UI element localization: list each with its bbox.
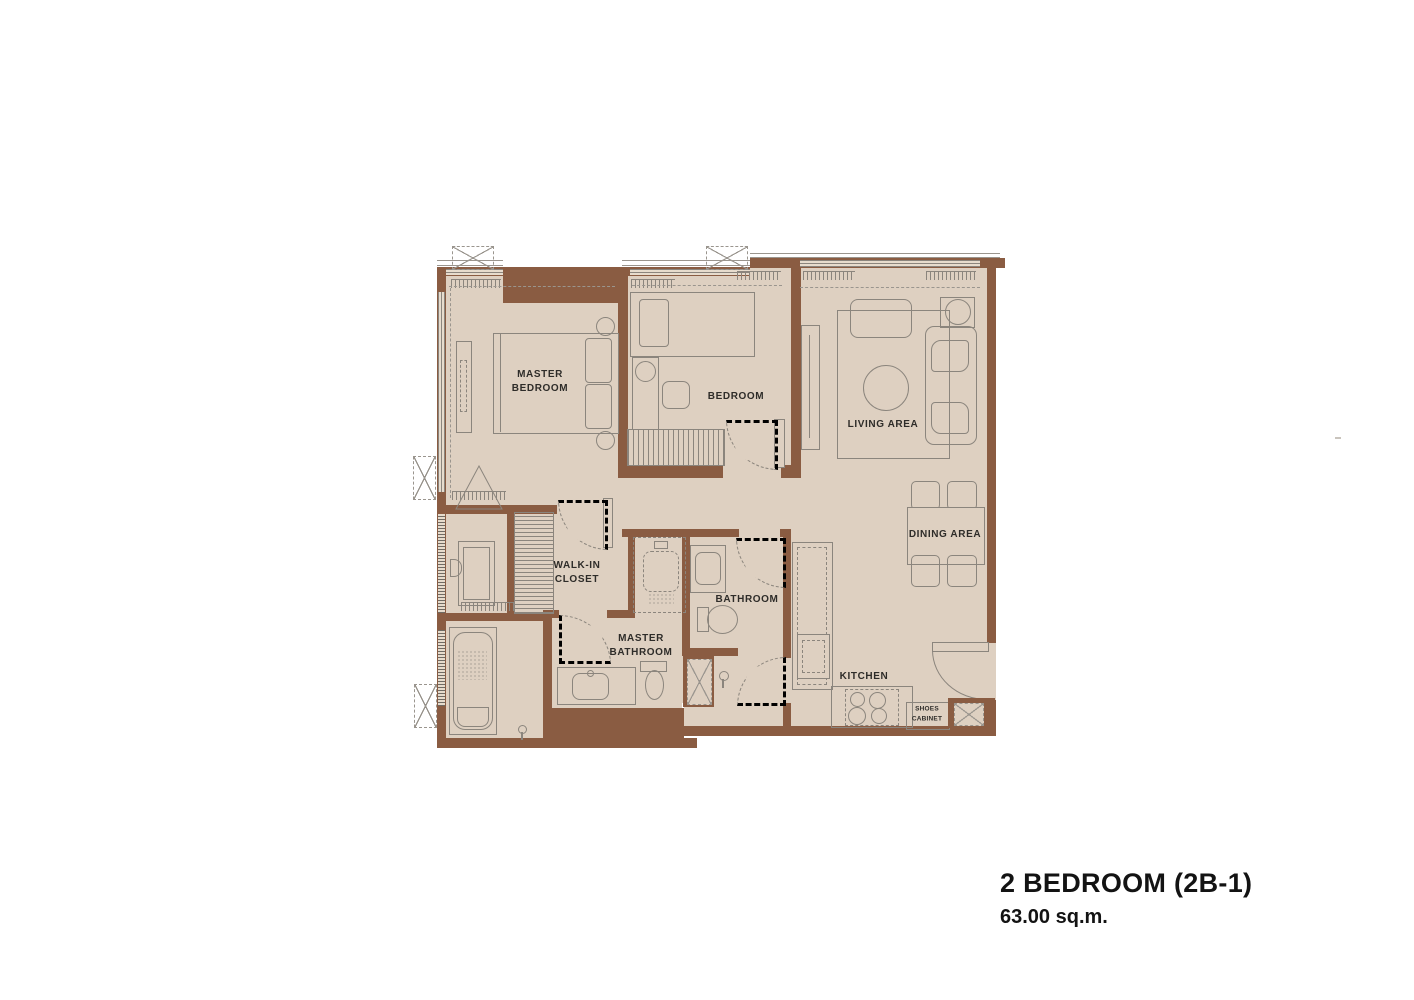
stove-burner-icon <box>848 707 866 725</box>
wall <box>607 610 635 618</box>
ac-ledge-marker <box>413 456 436 500</box>
sofa-pillow <box>931 402 969 434</box>
floor-drain-stem <box>722 679 724 688</box>
floor-drain-icon <box>719 671 729 681</box>
fridge-detail <box>802 640 825 673</box>
shower-tray <box>643 551 679 592</box>
wall <box>791 268 801 478</box>
vanity-basin <box>572 673 609 700</box>
window <box>438 514 445 613</box>
dresser-detail <box>460 360 467 412</box>
service-shaft <box>687 659 712 705</box>
wardrobe <box>514 512 554 614</box>
window-sill <box>750 253 1000 258</box>
curtain-icon <box>803 271 855 280</box>
floor-plan-page: MASTER BEDROOM BEDROOM LIVING AREA DININ… <box>0 0 1414 1000</box>
curtain-track <box>450 288 451 498</box>
stray-mark <box>1335 437 1341 439</box>
pillow <box>639 299 669 347</box>
label-shoes-cabinet: SHOES CABINET <box>912 704 942 724</box>
curtain-track <box>632 285 782 286</box>
pillow <box>585 384 612 429</box>
plan-title: 2 BEDROOM (2B-1) <box>1000 868 1252 899</box>
wall <box>690 529 739 537</box>
window <box>438 292 445 492</box>
toilet-bowl <box>707 605 738 634</box>
shower-head-icon <box>654 541 668 549</box>
plan-area: 63.00 sq.m. <box>1000 906 1252 929</box>
service-shaft <box>954 703 984 726</box>
room-label-kitchen: KITCHEN <box>840 670 889 684</box>
curtain-icon <box>737 271 781 280</box>
curtain-track <box>449 286 615 287</box>
stove-burner-icon <box>850 692 865 707</box>
desk-lamp-icon <box>635 361 656 382</box>
dining-chair <box>911 481 940 510</box>
floor-drain-stem <box>521 732 523 740</box>
chair <box>662 381 690 409</box>
shower-drain-dots <box>648 593 674 606</box>
curtain-icon <box>926 271 976 280</box>
curtain-icon <box>631 279 675 288</box>
floor-lamp-icon <box>945 299 971 325</box>
wall <box>783 703 791 726</box>
sofa-pillow <box>931 340 969 372</box>
window <box>438 630 445 706</box>
wall <box>437 613 543 621</box>
toilet-bowl <box>645 670 664 700</box>
room-label-bedroom: BEDROOM <box>708 390 764 404</box>
wall <box>543 610 552 710</box>
ac-ledge-marker <box>452 246 494 270</box>
stove-burner-icon <box>871 708 887 724</box>
curtain-corner-icon <box>455 465 503 510</box>
tv-console-line <box>809 335 810 438</box>
window <box>800 260 980 267</box>
faucet-icon <box>587 670 594 677</box>
pillow <box>585 338 612 383</box>
tv-console <box>801 325 820 450</box>
room-label-bathroom: BATHROOM <box>716 593 779 607</box>
nightstand-lamp-icon <box>596 431 615 450</box>
coffee-table <box>863 365 909 411</box>
bathtub-headrest <box>457 707 489 727</box>
room-label-living-area: LIVING AREA <box>848 418 919 432</box>
wall <box>543 708 684 738</box>
nightstand-lamp-icon <box>596 317 615 336</box>
side-cabinet <box>850 299 912 338</box>
room-label-dining-area: DINING AREA <box>909 528 981 542</box>
ac-ledge-marker <box>414 684 437 728</box>
bed-foot-line <box>500 333 501 432</box>
wall <box>620 465 723 478</box>
wall <box>503 267 622 303</box>
title-block: 2 BEDROOM (2B-1) 63.00 sq.m. <box>1000 868 1252 929</box>
room-label-master-bedroom: MASTER BEDROOM <box>512 368 568 396</box>
bathtub-antislip-dots <box>457 650 487 680</box>
room-label-master-bathroom: MASTER BATHROOM <box>610 632 673 660</box>
dining-chair <box>911 555 940 587</box>
dressing-table-top <box>463 547 490 600</box>
curtain-track <box>800 287 980 288</box>
dining-chair <box>947 555 977 587</box>
room-label-walk-in-closet: WALK-IN CLOSET <box>554 559 601 587</box>
wall <box>437 738 697 748</box>
dining-chair <box>947 481 977 510</box>
ac-ledge-marker <box>706 246 748 270</box>
wall <box>622 529 690 537</box>
bathroom-sink-basin <box>695 552 721 585</box>
wardrobe <box>627 429 725 466</box>
stove-burner-icon <box>869 692 886 709</box>
